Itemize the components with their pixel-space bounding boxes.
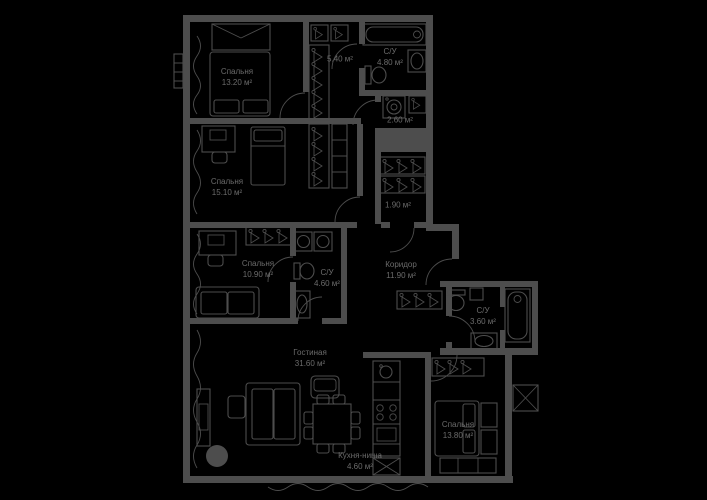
wardrobe-shelf-icon xyxy=(309,124,347,188)
room-area: 31.60 м² xyxy=(295,358,325,369)
room-area: 13.20 м² xyxy=(222,77,252,88)
room-name: Спальня xyxy=(242,258,274,269)
bathtub-2-icon xyxy=(505,289,530,342)
room-label-bathroom-3: С/У 3.60 м² xyxy=(470,305,496,327)
room-name: Кухня-ниша xyxy=(338,450,382,461)
room-name: Спальня xyxy=(211,176,243,187)
room-name: Спальня xyxy=(221,66,253,77)
corridor-hangers-icon xyxy=(397,291,442,309)
room-label-hallway: 5.40 м² xyxy=(327,54,353,65)
room-label-bathroom-2: С/У 4.60 м² xyxy=(314,267,340,289)
kitchen-counter-icon xyxy=(373,361,400,456)
room-name: Спальня xyxy=(442,419,474,430)
room-area: 13.80 м² xyxy=(443,430,473,441)
room-label-wardrobe: 1.90 м² xyxy=(385,200,411,211)
dining-table-icon xyxy=(304,395,360,453)
single-bed-icon xyxy=(251,127,285,185)
shower-tray-icon xyxy=(294,291,310,318)
room-area: 3.60 м² xyxy=(470,316,496,327)
desk-2-icon xyxy=(199,231,236,266)
room-area: 4.60 м² xyxy=(314,278,340,289)
room-label-bedroom-4: Спальня 13.80 м² xyxy=(442,419,474,441)
rug-icon xyxy=(206,445,228,467)
room-area: 1.90 м² xyxy=(385,200,411,211)
bathtub-icon xyxy=(363,24,426,45)
room-name: С/У xyxy=(476,305,489,316)
room-name: Гостиная xyxy=(293,347,327,358)
room-label-laundry: 2.60 м² xyxy=(387,115,413,126)
hanger-box-icon xyxy=(409,96,426,113)
room-area: 10.90 м² xyxy=(243,269,273,280)
tv-stand-icon xyxy=(197,389,210,446)
sofa-bed-icon xyxy=(196,287,259,318)
coffee-table-icon xyxy=(228,396,245,418)
hanger-row-icon xyxy=(246,227,292,245)
coat-hangers-icon xyxy=(309,25,348,120)
floor-plan: Спальня 13.20 м² 5.40 м² С/У 4.80 м² 2.6… xyxy=(0,0,707,500)
room-label-bedroom-3: Спальня 10.90 м² xyxy=(242,258,274,280)
room-area: 4.80 м² xyxy=(377,57,403,68)
nightstand-icon xyxy=(481,403,497,454)
dresser-icon xyxy=(440,458,496,473)
room-name: С/У xyxy=(320,267,333,278)
floor-plan-svg xyxy=(0,0,707,500)
sofa-icon xyxy=(246,383,300,445)
bedroom4-hangers-icon xyxy=(432,358,484,376)
toilet-2-icon xyxy=(294,263,314,279)
wardrobe-cabinet-icon xyxy=(212,24,270,50)
room-area: 2.60 м² xyxy=(387,115,413,126)
room-name: Коридор xyxy=(385,259,417,270)
room-area: 15.10 м² xyxy=(212,187,242,198)
room-area: 4.60 м² xyxy=(347,461,373,472)
washer-dryer-icon xyxy=(295,232,332,251)
sink-icon xyxy=(408,50,426,72)
room-area: 11.90 м² xyxy=(386,270,416,281)
room-label-bedroom-1: Спальня 13.20 м² xyxy=(221,66,253,88)
room-label-corridor: Коридор 11.90 м² xyxy=(385,259,417,281)
sink-2-icon xyxy=(471,333,497,349)
room-label-kitchen-niche: Кухня-ниша 4.60 м² xyxy=(338,450,382,472)
room-label-bathroom-1: С/У 4.80 м² xyxy=(377,46,403,68)
room-label-bedroom-2: Спальня 15.10 м² xyxy=(211,176,243,198)
desk-icon xyxy=(202,126,235,163)
wardrobe-hangers-icon xyxy=(380,157,425,193)
niche-icon xyxy=(470,288,483,300)
room-name: С/У xyxy=(383,46,396,57)
room-area: 5.40 м² xyxy=(327,54,353,65)
toilet-icon xyxy=(365,66,386,84)
room-label-living-room: Гостиная 31.60 м² xyxy=(293,347,327,369)
